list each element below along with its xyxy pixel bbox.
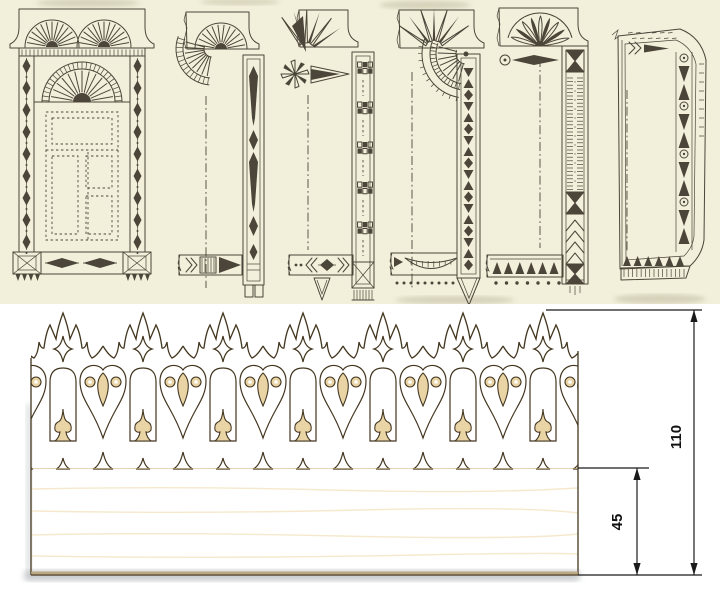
window-design-corner-4 — [390, 8, 484, 304]
engraving-plate-svg — [0, 0, 720, 304]
window-design-corner-2 — [176, 12, 264, 297]
dimension-total-label: 110 — [668, 425, 685, 449]
arrowhead-icon — [633, 563, 640, 575]
fretwork-board — [0, 307, 606, 575]
arrowhead-icon — [690, 563, 697, 575]
window-design-corner-5 — [486, 8, 588, 295]
arrowhead-icon — [690, 310, 697, 322]
engraving-plate — [0, 0, 720, 304]
window-design-frame-6 — [612, 29, 706, 280]
fretwork-photo-svg: 110 45 — [0, 304, 720, 597]
arrowhead-icon — [633, 468, 640, 480]
page: 110 45 — [0, 0, 720, 597]
window-design-corner-3 — [281, 10, 374, 300]
window-design-full-frame — [10, 9, 154, 281]
dimension-band-label: 45 — [609, 514, 626, 531]
fretwork-photo: 110 45 — [0, 304, 720, 597]
